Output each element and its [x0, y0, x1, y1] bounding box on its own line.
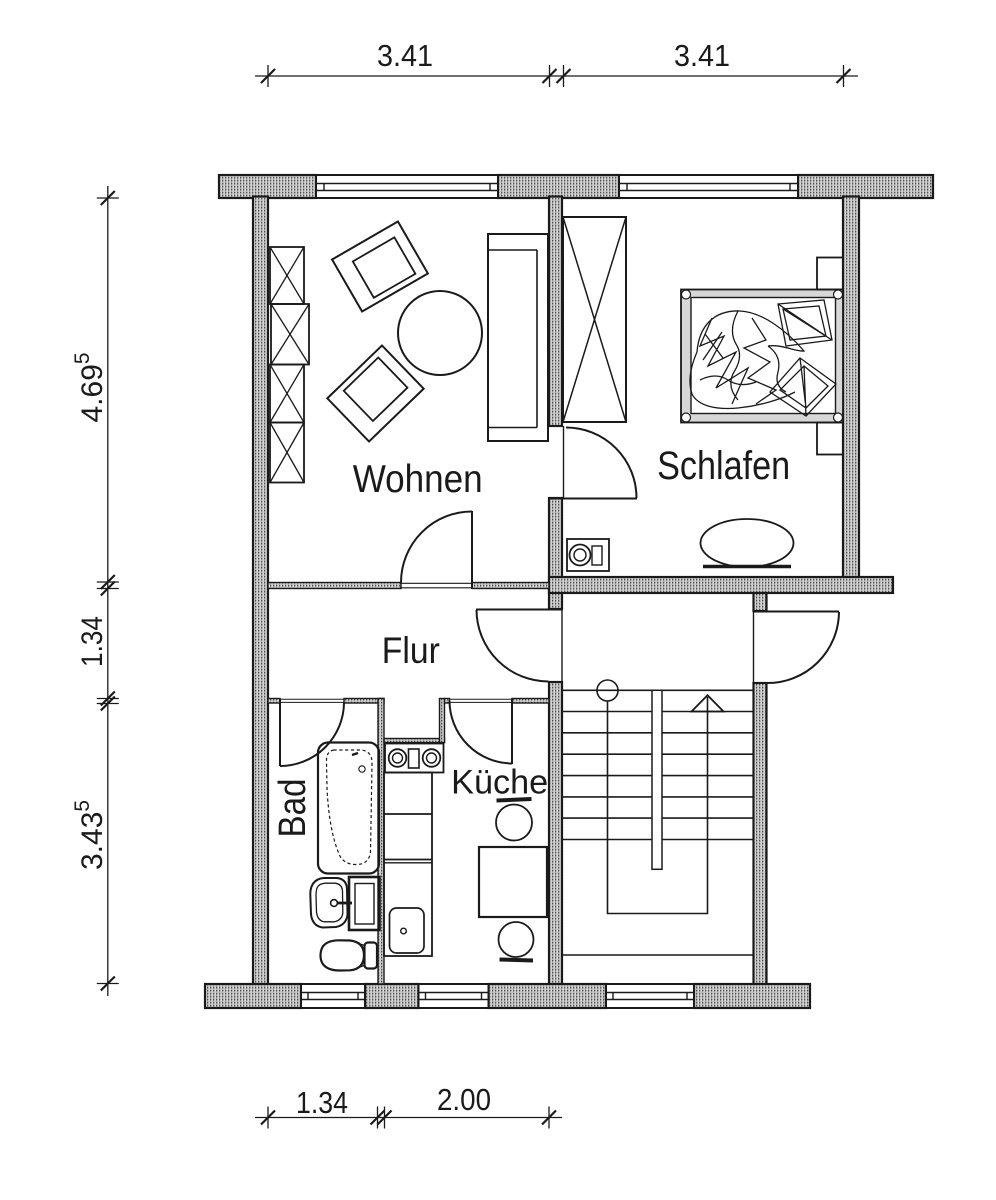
svg-text:Bad: Bad [272, 779, 314, 838]
svg-text:1.34: 1.34 [76, 616, 109, 667]
svg-text:1.34: 1.34 [296, 1085, 348, 1120]
svg-text:3.41: 3.41 [377, 38, 433, 73]
svg-text:Schlafen: Schlafen [657, 444, 790, 488]
svg-text:Flur: Flur [382, 630, 440, 671]
svg-text:Wohnen: Wohnen [353, 458, 483, 501]
svg-text:2.00: 2.00 [437, 1082, 491, 1117]
svg-text:Küche: Küche [451, 764, 548, 802]
svg-text:3.41: 3.41 [674, 38, 730, 73]
